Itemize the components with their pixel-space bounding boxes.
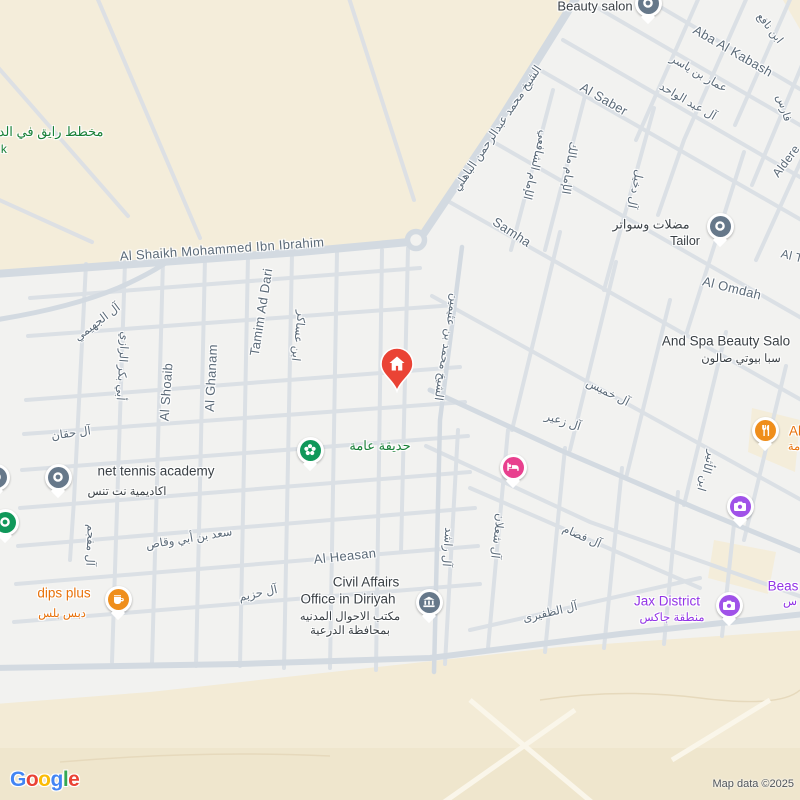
poi-label-dips-plus[interactable]: dips plus — [37, 586, 90, 601]
dot-icon — [638, 0, 659, 14]
bed-icon — [503, 457, 524, 478]
google-logo-letter: g — [51, 768, 63, 791]
camera-icon — [730, 496, 751, 517]
poi-pin-tailor dot-icon[interactable] — [707, 213, 734, 240]
poi-label-public-park[interactable]: حديقة عامة — [349, 438, 410, 454]
restaurant-icon — [755, 420, 776, 441]
poi-label-jax-district[interactable]: Jax District — [634, 594, 700, 609]
poi-label-restaurant[interactable]: Al — [789, 424, 800, 439]
poi-pin-dips-plus coffee-icon[interactable] — [105, 586, 132, 613]
poi-pin-net-tennis-academy dot-icon[interactable] — [45, 464, 72, 491]
area-label: k — [1, 142, 7, 156]
dot-icon — [0, 512, 16, 533]
dot-icon — [710, 216, 731, 237]
poi-label-beauty-salon[interactable]: Beauty salon — [557, 0, 632, 14]
property-marker home-icon[interactable] — [380, 347, 414, 398]
roundabout — [408, 232, 425, 249]
poi-pin-public-park flower-icon[interactable] — [297, 437, 324, 464]
poi-label-civil-affairs-office[interactable]: Civil Affairs — [333, 575, 400, 590]
poi-label-civil-affairs-office[interactable]: بمحافظة الدرعية — [310, 623, 390, 637]
dot-icon — [48, 467, 69, 488]
poi-pin-jax-district camera-icon[interactable] — [716, 592, 743, 619]
area-label: مخطط رايق في الدرع — [0, 124, 104, 140]
poi-label-jax-district[interactable]: منطقة جاكس — [640, 610, 705, 624]
poi-pin-hotel bed-icon[interactable] — [500, 454, 527, 481]
poi-pin-civil-affairs-office bank-icon[interactable] — [416, 589, 443, 616]
google-logo-letter: o — [38, 768, 50, 791]
poi-label-net-tennis-academy[interactable]: net tennis academy — [97, 464, 214, 479]
poi-label-beast[interactable]: Beas — [768, 579, 799, 594]
poi-label-restaurant[interactable]: مة — [788, 439, 800, 453]
poi-label-tailor[interactable]: Tailor — [670, 234, 700, 248]
poi-pin-photo-spot camera-icon[interactable] — [727, 493, 754, 520]
poi-label-beast[interactable]: س — [783, 594, 797, 608]
google-logo-letter: G — [10, 768, 26, 791]
poi-label-net-tennis-academy[interactable]: اكاديمية نت تنس — [88, 484, 167, 498]
poi-label-and-spa-beauty-salon[interactable]: سبا بيوتي صالون — [701, 351, 781, 365]
poi-label-and-spa-beauty-salon[interactable]: And Spa Beauty Salo — [662, 334, 790, 349]
poi-label-tailor[interactable]: مضلات وسواتر — [612, 217, 689, 232]
camera-icon — [719, 595, 740, 616]
poi-label-civil-affairs-office[interactable]: Office in Diriyah — [300, 592, 395, 607]
bank-icon — [419, 592, 440, 613]
dot-icon — [0, 467, 7, 488]
poi-label-dips-plus[interactable]: دبس بلس — [38, 606, 86, 620]
map-canvas[interactable]: Aba Al Kabashعمار بن ياسرآل عبد الواحداب… — [0, 0, 800, 800]
google-logo-letter: o — [26, 768, 38, 791]
street-label: آل مفجم — [83, 524, 98, 566]
flower-icon — [300, 440, 321, 461]
street-label: آل راشد — [440, 527, 457, 567]
poi-pin-restaurant restaurant-icon[interactable] — [752, 417, 779, 444]
coffee-icon — [108, 589, 129, 610]
google-logo-letter: e — [68, 768, 79, 791]
poi-label-civil-affairs-office[interactable]: مكتب الاحوال المدنيه — [300, 609, 400, 623]
google-logo[interactable]: Google — [10, 768, 79, 792]
map-data-attribution: Map data ©2025 — [713, 778, 795, 790]
